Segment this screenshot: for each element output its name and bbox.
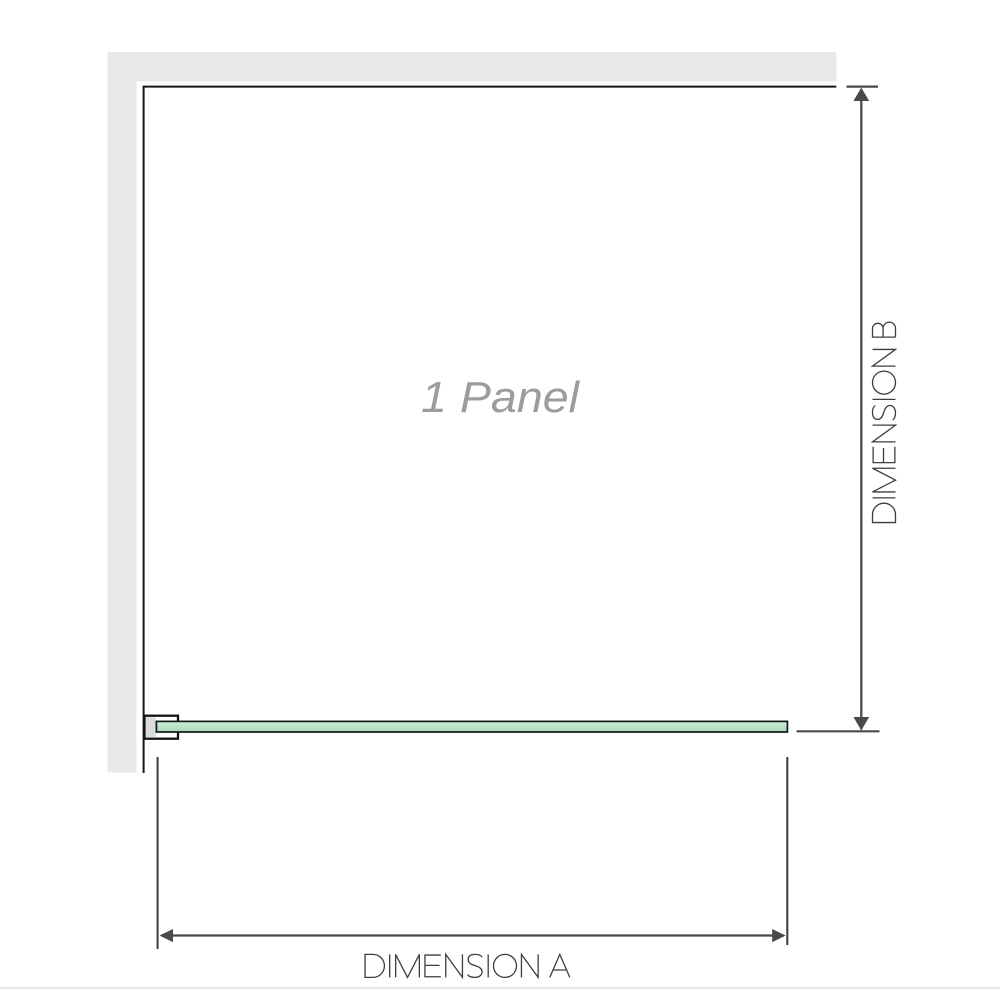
svg-text:1 Panel: 1 Panel xyxy=(421,373,580,422)
